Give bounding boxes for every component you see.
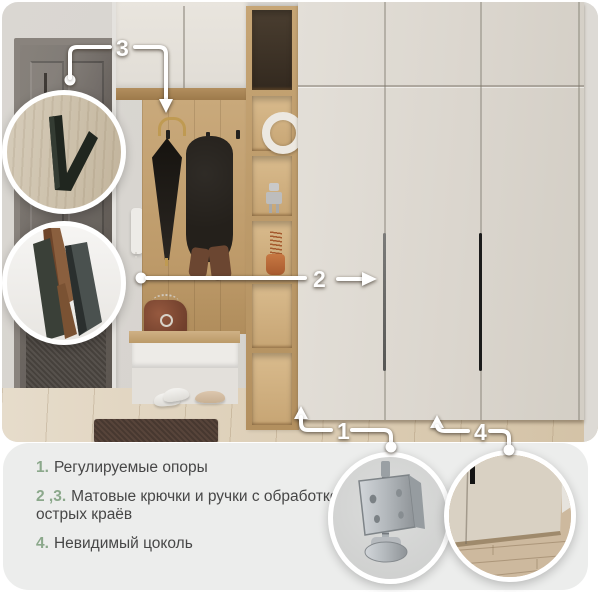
- shelf-cell-diffuser: [252, 221, 292, 279]
- bench-top: [129, 331, 240, 343]
- hook-closeup-image: [2, 90, 126, 214]
- hallway-photo: [2, 2, 598, 442]
- beige-heels: [195, 391, 225, 403]
- wardrobe: [298, 2, 584, 420]
- bag-ring-charm: [160, 314, 173, 327]
- coat-hook-3: [236, 130, 240, 139]
- shelf-cell-top: [252, 10, 292, 90]
- shelf-cell-empty-1: [252, 284, 292, 348]
- bench-drawer: [132, 343, 238, 368]
- feature-list: 1.Регулируемые опоры 2 ,3.Матовые крючки…: [36, 459, 366, 564]
- bracket-hole-3: [396, 489, 402, 497]
- umbrella-handle: [158, 117, 186, 136]
- robot-figurine-head: [269, 183, 279, 191]
- upper-cabinets: [116, 2, 248, 90]
- panel-edges-graphic: [7, 226, 121, 340]
- feature-number: 2 ,3.: [36, 488, 66, 505]
- bracket-hole-2: [374, 515, 380, 523]
- feature-item-1: 1.Регулируемые опоры: [36, 459, 366, 477]
- robot-leg-1: [269, 204, 272, 213]
- plinth-graphic: [449, 455, 571, 577]
- feature-item-3: 4.Невидимый цоколь: [36, 535, 366, 553]
- feature-number: 4.: [36, 535, 49, 552]
- robot-figurine: [266, 192, 282, 204]
- adjustable-foot-graphic: [333, 457, 437, 569]
- hanging-coat: [186, 136, 233, 262]
- caster-closeup-image: [328, 452, 452, 584]
- feature-item-2: 2 ,3.Матовые крючки и ручки с обработкой…: [36, 488, 366, 524]
- foot-bracket: [359, 475, 415, 535]
- wardrobe-handle-left: [383, 233, 387, 371]
- shelf-column: [246, 6, 299, 430]
- shelf-cell-vase: [252, 96, 292, 151]
- shelf-cell-empty-2: [252, 353, 292, 425]
- bracket-hole-1: [370, 495, 377, 504]
- v-hook-graphic: [7, 95, 121, 209]
- foot-base: [365, 542, 407, 562]
- cabinet-seam: [183, 6, 185, 90]
- feature-text: Регулируемые опоры: [54, 459, 208, 476]
- feature-text: Матовые крючки и ручки с обработкой остр…: [36, 488, 347, 523]
- side-wall: [584, 2, 598, 442]
- edges-closeup-image: [2, 221, 126, 345]
- doormat: [94, 419, 218, 442]
- cabinet-oak-strip: [116, 88, 248, 100]
- feature-number: 1.: [36, 459, 49, 476]
- foot-bolt: [381, 461, 390, 477]
- robot-leg-2: [276, 204, 279, 213]
- suede-boot-2: [208, 245, 232, 281]
- door-handle: [44, 73, 47, 93]
- shelf-cell-robot: [252, 156, 292, 216]
- wardrobe-top-seam: [298, 85, 584, 87]
- wardrobe-seam-3: [578, 2, 580, 420]
- plinth-closeup-image: [444, 450, 576, 582]
- bracket-hole-4: [398, 511, 404, 519]
- wardrobe-handle-right: [479, 233, 483, 371]
- feature-text: Невидимый цоколь: [54, 535, 193, 552]
- reed-diffuser: [266, 254, 285, 275]
- umbrella-tip: [165, 258, 168, 266]
